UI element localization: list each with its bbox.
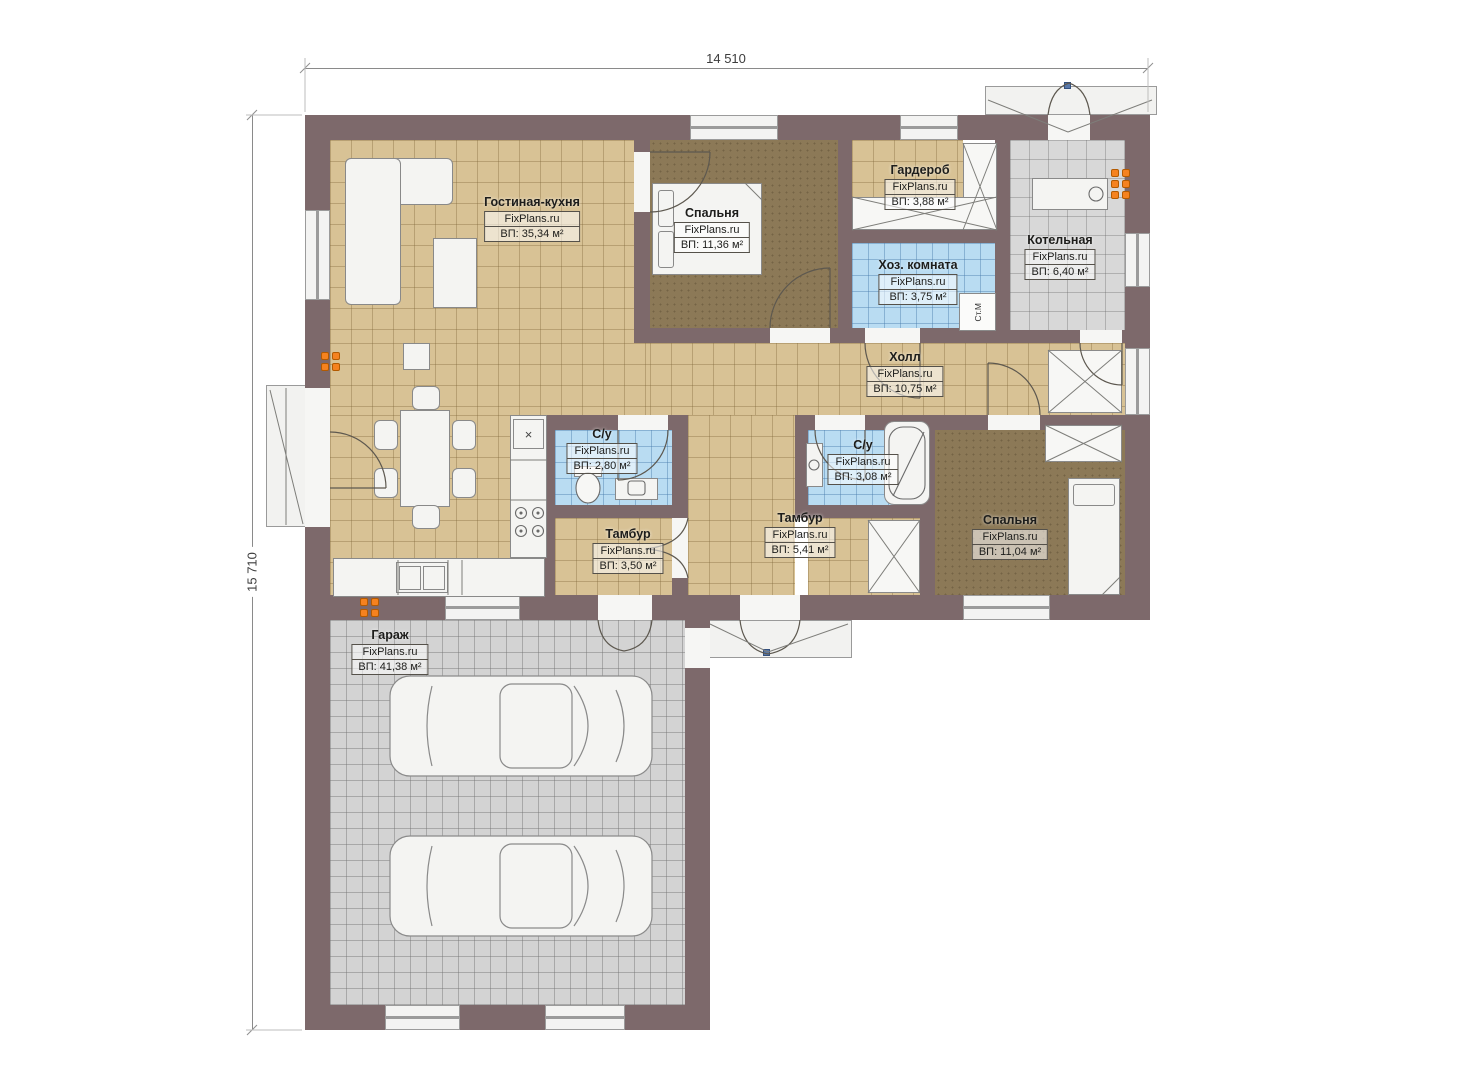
wall-segment — [995, 140, 1010, 343]
dimension-line-top — [305, 68, 1148, 69]
wall-garage-right — [685, 620, 710, 1030]
boiler-unit — [1032, 178, 1108, 210]
dimension-label-left: 15 710 — [245, 547, 260, 597]
wall-segment — [838, 140, 852, 335]
pillow — [1073, 484, 1115, 506]
coffee-table — [433, 238, 477, 308]
wall-segment — [672, 578, 688, 595]
room-label-tambour-1: Тамбур FixPlans.ru ВП: 3,50 м² — [592, 527, 663, 574]
bathroom-sink — [615, 478, 658, 500]
room-label-wardrobe: Гардероб FixPlans.ru ВП: 3,88 м² — [884, 163, 955, 210]
door-pivot-icon — [1064, 82, 1071, 89]
window — [385, 1005, 460, 1030]
door-opening — [672, 518, 688, 578]
floor-plan: 14 510 15 710 — [0, 0, 1474, 1080]
room-label-wc-2: С/у FixPlans.ru ВП: 3,08 м² — [827, 438, 898, 485]
door-opening-bay — [305, 388, 330, 527]
room-label-bedroom-1: Спальня FixPlans.ru ВП: 11,36 м² — [674, 206, 750, 253]
window — [1125, 348, 1150, 415]
pillow — [658, 231, 674, 268]
room-label-garage: Гараж FixPlans.ru ВП: 41,38 м² — [351, 628, 428, 675]
window — [1125, 233, 1150, 287]
room-label-boiler: Котельная FixPlans.ru ВП: 6,40 м² — [1024, 233, 1095, 280]
door-opening — [815, 415, 865, 430]
closet — [1048, 350, 1122, 413]
closet — [1045, 425, 1122, 462]
chair — [452, 468, 476, 498]
chair — [452, 420, 476, 450]
room-label-bedroom-2: Спальня FixPlans.ru ВП: 11,04 м² — [972, 513, 1048, 560]
window — [305, 210, 330, 300]
room-label-utility: Хоз. комната FixPlans.ru ВП: 3,75 м² — [878, 258, 957, 305]
door-pivot-icon — [763, 649, 770, 656]
radiator-icon — [321, 352, 340, 371]
bay-window — [266, 385, 307, 527]
chair — [412, 386, 440, 410]
wall-segment — [852, 230, 995, 243]
wall-garage-bottom — [305, 1005, 710, 1030]
floor-tambour-2 — [688, 415, 795, 595]
radiator-icon — [1111, 169, 1130, 199]
door-opening — [634, 152, 650, 212]
window — [690, 115, 778, 140]
radiator-icon — [360, 598, 379, 617]
washing-machine-label: Ст.М — [973, 303, 983, 322]
floor-living — [330, 343, 650, 415]
sofa — [345, 158, 401, 305]
door-opening — [685, 628, 710, 668]
kitchen-sink-basin — [423, 566, 445, 590]
entrance-porch-top — [985, 86, 1157, 115]
room-label-tambour-2: Тамбур FixPlans.ru ВП: 5,41 м² — [764, 511, 835, 558]
door-opening-entrance-top — [1048, 115, 1090, 140]
door-opening-garage — [598, 595, 652, 620]
window — [545, 1005, 625, 1030]
pillow — [658, 190, 674, 227]
window — [445, 595, 520, 620]
hob-symbol-glyph: × — [525, 427, 533, 442]
chair — [412, 505, 440, 529]
entrance-porch-bottom — [708, 620, 852, 658]
door-opening-entrance-bottom — [740, 595, 800, 620]
hob-symbol: × — [513, 419, 544, 449]
room-label-hall: Холл FixPlans.ru ВП: 10,75 м² — [866, 350, 943, 397]
door-opening — [770, 328, 830, 343]
chair — [374, 420, 398, 450]
chair — [374, 468, 398, 498]
window — [900, 115, 958, 140]
wall-segment — [555, 505, 688, 518]
room-label-wc-1: С/у FixPlans.ru ВП: 2,80 м² — [566, 427, 637, 474]
closet — [868, 520, 920, 593]
bathroom-sink — [806, 443, 823, 487]
dimension-label-top: 14 510 — [701, 51, 751, 66]
washing-machine: Ст.М — [959, 293, 996, 331]
door-opening — [1080, 330, 1122, 343]
dining-table — [400, 410, 450, 507]
side-table — [403, 343, 430, 370]
door-opening — [988, 415, 1040, 430]
wall-segment — [672, 418, 688, 518]
floor-garage — [330, 620, 685, 1005]
kitchen-sink-basin — [399, 566, 421, 590]
door-opening — [865, 328, 920, 343]
room-label-living-kitchen: Гостиная-кухня FixPlans.ru ВП: 35,34 м² — [484, 195, 580, 242]
window — [963, 595, 1050, 620]
